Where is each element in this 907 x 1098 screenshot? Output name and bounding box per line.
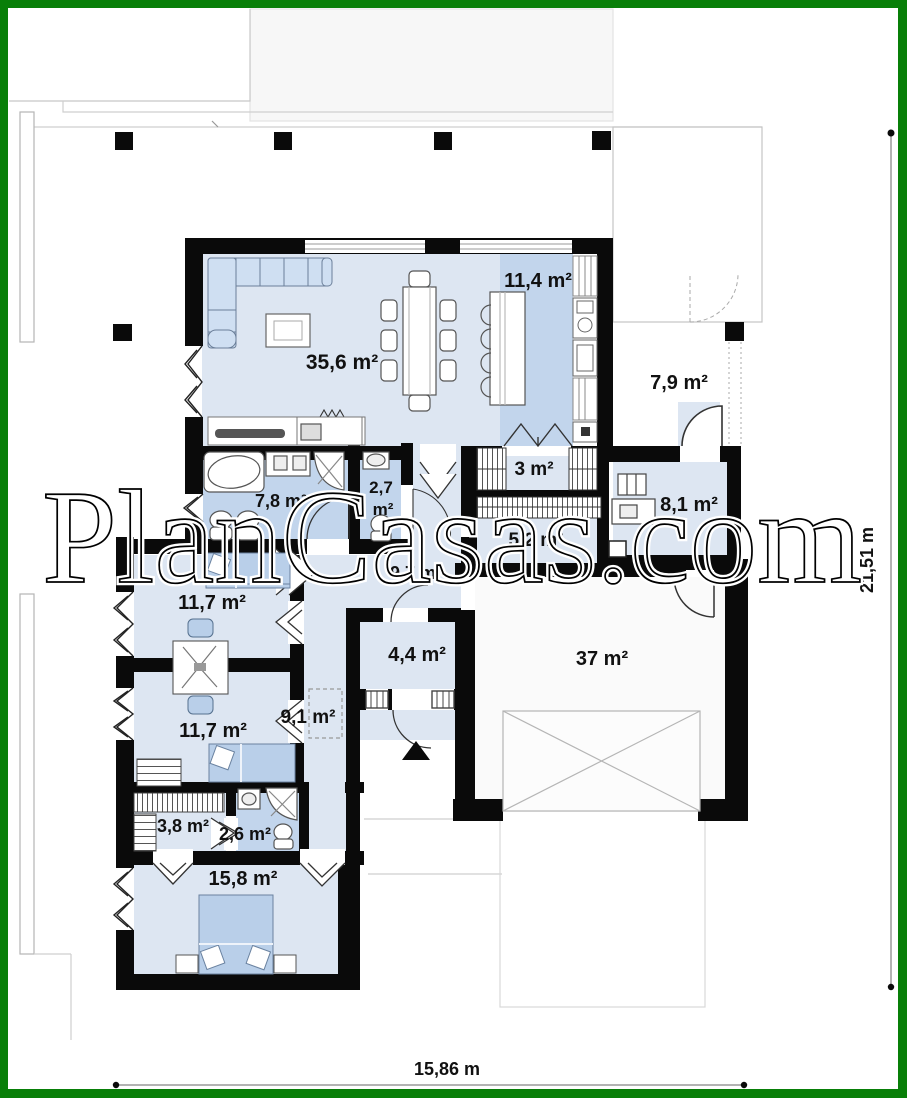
svg-text:15,86 m: 15,86 m [414, 1059, 480, 1079]
svg-text:7,9 m²: 7,9 m² [650, 372, 708, 394]
svg-text:37 m²: 37 m² [576, 648, 629, 670]
svg-text:15,8 m²: 15,8 m² [209, 868, 278, 890]
svg-text:9,1 m²: 9,1 m² [281, 707, 336, 728]
svg-text:11,7 m²: 11,7 m² [179, 720, 247, 742]
svg-text:PlanCasas.com: PlanCasas.com [42, 463, 862, 611]
svg-text:11,4 m²: 11,4 m² [504, 270, 572, 292]
svg-text:3,8 m²: 3,8 m² [157, 816, 209, 836]
svg-text:2,6 m²: 2,6 m² [219, 824, 271, 844]
svg-text:4,4 m²: 4,4 m² [388, 644, 446, 666]
svg-text:35,6 m²: 35,6 m² [306, 351, 378, 374]
